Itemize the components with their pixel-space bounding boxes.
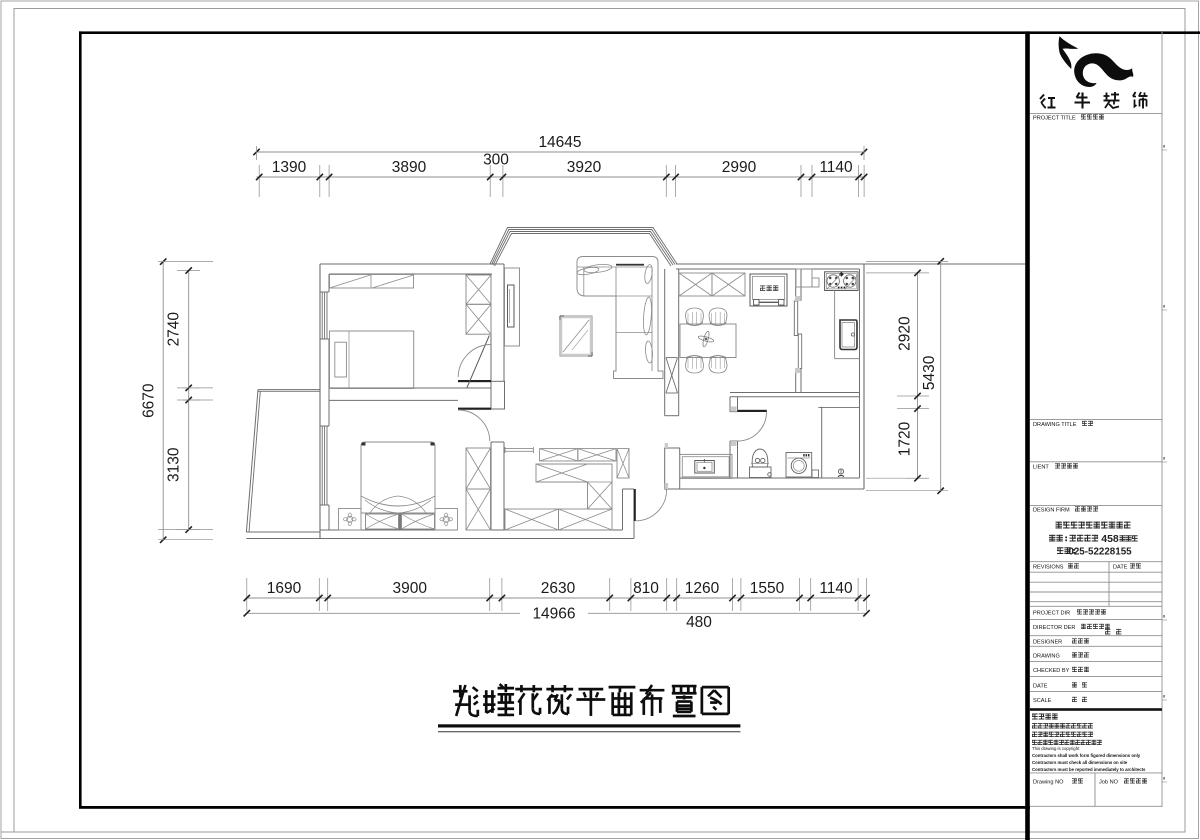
svg-text:3920: 3920 — [567, 159, 602, 176]
svg-text:025-52228155: 025-52228155 — [1068, 546, 1132, 557]
svg-text:2920: 2920 — [897, 316, 914, 351]
svg-text:DRAWING TITLE: DRAWING TITLE — [1033, 422, 1077, 428]
svg-text:Contractors shall work form fi: Contractors shall work form figured dime… — [1032, 753, 1141, 758]
svg-text:1140: 1140 — [819, 159, 853, 176]
svg-text:458: 458 — [1101, 533, 1119, 545]
svg-text:CHECKED BY: CHECKED BY — [1033, 668, 1070, 674]
svg-text:6670: 6670 — [141, 383, 158, 418]
svg-text:DIRECTOR DER: DIRECTOR DER — [1033, 625, 1075, 631]
svg-text:3130: 3130 — [166, 447, 183, 482]
svg-text:REVISIONS: REVISIONS — [1033, 565, 1064, 571]
svg-text:1720: 1720 — [897, 421, 914, 456]
svg-text:3890: 3890 — [392, 159, 427, 176]
svg-text:1260: 1260 — [685, 580, 720, 597]
svg-text:This drawing is copyright: This drawing is copyright — [1032, 746, 1080, 751]
svg-text:1550: 1550 — [750, 580, 785, 597]
svg-text:1390: 1390 — [272, 159, 307, 176]
svg-text:1690: 1690 — [267, 580, 302, 597]
svg-text:PROJECT TITLE: PROJECT TITLE — [1033, 116, 1076, 122]
svg-text:DATE: DATE — [1033, 684, 1048, 690]
svg-text:DESIGN FIRM: DESIGN FIRM — [1033, 508, 1070, 514]
svg-text:14966: 14966 — [532, 605, 575, 622]
svg-text:Drawing NO: Drawing NO — [1033, 780, 1064, 786]
svg-text:DESIGNER: DESIGNER — [1033, 640, 1062, 646]
svg-text:810: 810 — [633, 580, 659, 597]
svg-text:3900: 3900 — [393, 580, 428, 597]
svg-text:Contractors must check all dim: Contractors must check all dimensions on… — [1032, 760, 1128, 765]
svg-text:Contractors must be reported i: Contractors must be reported immediately… — [1032, 767, 1146, 772]
svg-text:SCALE: SCALE — [1033, 698, 1052, 704]
svg-text:14645: 14645 — [538, 134, 581, 151]
svg-text:2740: 2740 — [166, 312, 183, 347]
svg-text:480: 480 — [686, 614, 712, 631]
svg-text:1140: 1140 — [819, 580, 853, 597]
svg-text:Job NO: Job NO — [1099, 780, 1119, 786]
svg-text:5430: 5430 — [921, 355, 938, 390]
svg-text:DATE: DATE — [1113, 565, 1128, 571]
svg-text:LIENT: LIENT — [1033, 465, 1049, 471]
svg-text:PROJECT DIR: PROJECT DIR — [1033, 611, 1070, 617]
svg-text:DRAWING: DRAWING — [1033, 654, 1060, 660]
svg-text:300: 300 — [483, 152, 509, 169]
svg-text:2630: 2630 — [541, 580, 576, 597]
svg-text:2990: 2990 — [722, 159, 757, 176]
